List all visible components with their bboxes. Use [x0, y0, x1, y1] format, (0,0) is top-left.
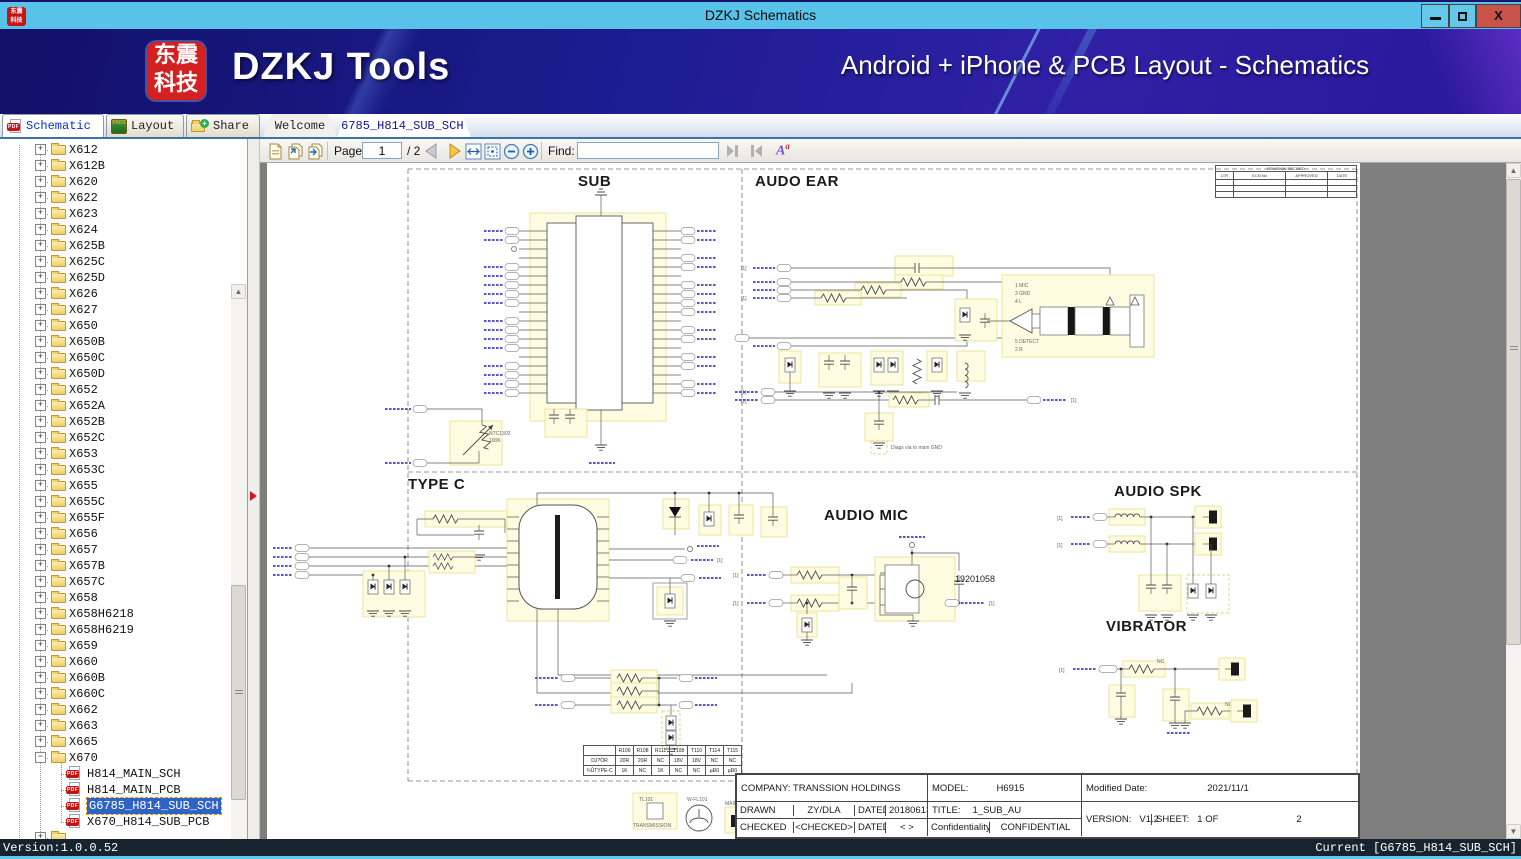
- svg-text:[1]: [1]: [1057, 543, 1063, 549]
- svg-text:[1]: [1]: [1059, 668, 1065, 674]
- folder-icon: [51, 177, 66, 187]
- expand-toggle[interactable]: +: [35, 352, 46, 363]
- close-button[interactable]: X: [1476, 4, 1521, 28]
- tree-folder-label: X658H6218: [69, 606, 134, 622]
- tab-label: Share: [213, 119, 249, 133]
- tree-folder-row[interactable]: +X650C: [0, 350, 230, 366]
- tree-folder-row[interactable]: +X653: [0, 446, 230, 462]
- expand-toggle[interactable]: +: [35, 304, 46, 315]
- tree-folder-row[interactable]: +X625D: [0, 270, 230, 286]
- expand-toggle[interactable]: +: [35, 464, 46, 475]
- expand-toggle[interactable]: +: [35, 144, 46, 155]
- tree-folder-row[interactable]: +X650: [0, 318, 230, 334]
- typec-config-table: R106R108R111T108T110T114T115DJ?ÖR20R20RN…: [583, 745, 742, 776]
- folder-icon: [51, 337, 66, 347]
- tree-folder-row[interactable]: +X662: [0, 702, 230, 718]
- expand-toggle[interactable]: +: [35, 592, 46, 603]
- drawn-row: DRAWN ZY/DLA DATED 20180613: [737, 802, 928, 819]
- typec-table-cell: 1K: [616, 766, 634, 776]
- expand-toggle[interactable]: +: [35, 736, 46, 747]
- tree-folder-label: X656: [69, 526, 98, 542]
- pdf-icon: PDF: [66, 798, 81, 813]
- status-bar: Version:1.0.0.52 Current [G6785_H814_SUB…: [0, 839, 1521, 859]
- title-bar[interactable]: 东震科技 DZKJ Schematics X: [0, 0, 1521, 29]
- prev-page-button[interactable]: [422, 142, 440, 160]
- tree-folder-label: X652B: [69, 414, 105, 430]
- scrollbar-grip: [235, 690, 243, 696]
- fit-page-button[interactable]: [483, 142, 501, 160]
- tree-folder-row[interactable]: +X656: [0, 526, 230, 542]
- expand-toggle[interactable]: +: [35, 528, 46, 539]
- tab-layout[interactable]: PADS Layout: [106, 114, 184, 137]
- tree-folder-row[interactable]: −X670: [0, 750, 230, 766]
- pdf-badge: PDF: [66, 818, 79, 826]
- folder-icon: [51, 705, 66, 715]
- pdf-icon: PDF: [66, 766, 81, 781]
- revision-table-header: ECN No: [1234, 172, 1286, 180]
- svg-text:W-FL101: W-FL101: [687, 797, 708, 803]
- tab-welcome[interactable]: Welcome: [263, 114, 337, 137]
- tree-folder-label: X627: [69, 302, 98, 318]
- folder-icon: [51, 657, 66, 667]
- svg-text:1 MIC: 1 MIC: [1015, 283, 1029, 289]
- tree-folder-row[interactable]: +X612: [0, 142, 230, 158]
- folder-icon: [51, 753, 66, 763]
- expand-toggle[interactable]: +: [35, 640, 46, 651]
- canvas-scrollbar[interactable]: ▲ ▼: [1506, 163, 1521, 839]
- folder-icon: [51, 433, 66, 443]
- scrollbar-grip: [1510, 346, 1518, 352]
- tree-folder-label: X650C: [69, 350, 105, 366]
- typec-table-cell: 20R: [616, 756, 634, 766]
- typec-table-cell: [584, 746, 616, 756]
- tree-folder-label: X655C: [69, 494, 105, 510]
- section-title-audo-ear: AUDO EAR: [755, 173, 839, 190]
- current-document-text: Current [G6785_H814_SUB_SCH]: [1315, 840, 1517, 856]
- tab-close-icon[interactable]: x: [469, 119, 475, 132]
- tree-folder-row[interactable]: +X663: [0, 718, 230, 734]
- confidentiality-row: Confidentiality CONFIDENTIAL: [928, 819, 1082, 836]
- pdf-badge: PDF: [66, 802, 79, 810]
- expand-toggle[interactable]: +: [35, 512, 46, 523]
- typec-table-cell: R111: [652, 746, 670, 756]
- tree-folder-row[interactable]: +X658: [0, 590, 230, 606]
- tree-folder-label: X620: [69, 174, 98, 190]
- typec-table-cell: DJ?ÖR: [584, 756, 616, 766]
- folder-icon: [51, 721, 66, 731]
- schematic-page: NTC1302100K [1] [1]: [267, 163, 1360, 839]
- app-name: DZKJ Tools: [232, 46, 450, 89]
- folder-icon: [51, 689, 66, 699]
- type-c-section-drawing: [1]: [273, 492, 852, 755]
- expand-toggle[interactable]: +: [35, 672, 46, 683]
- typec-table-cell: 20R: [634, 756, 652, 766]
- tree-folder-label: X652A: [69, 398, 105, 414]
- revision-table-header: LTR: [1216, 172, 1234, 180]
- typec-table-cell: 18V: [688, 756, 706, 766]
- revision-table-cell: [1216, 192, 1234, 198]
- folder-icon: [51, 449, 66, 459]
- svg-text:Diags via to main GND: Diags via to main GND: [891, 445, 942, 451]
- svg-text:[1]: [1]: [717, 558, 723, 564]
- window-title: DZKJ Schematics: [0, 2, 1521, 28]
- tab-bar: PDF Schematic PADS Layout + Share Welcom…: [0, 114, 1521, 137]
- tree-file-row[interactable]: PDFX670_H814_SUB_PCB: [0, 814, 230, 830]
- revision-table-header: DATE: [1328, 172, 1357, 180]
- typec-table-cell: NC: [688, 766, 706, 776]
- tree-file-row[interactable]: PDFH814_MAIN_PCB: [0, 782, 230, 798]
- tree-folder-row[interactable]: +X652C: [0, 430, 230, 446]
- folder-icon: [51, 609, 66, 619]
- tree-folder-label: X670: [69, 750, 98, 766]
- expand-toggle[interactable]: +: [35, 432, 46, 443]
- folder-icon: [51, 193, 66, 203]
- expand-toggle[interactable]: +: [35, 176, 46, 187]
- tree-folder-label: X653C: [69, 462, 105, 478]
- banner-tagline: Android + iPhone & PCB Layout - Schemati…: [795, 50, 1415, 81]
- tree-folder-label: X625D: [69, 270, 105, 286]
- expand-toggle[interactable]: +: [35, 416, 46, 427]
- maximize-button[interactable]: [1449, 4, 1476, 28]
- expand-toggle[interactable]: +: [35, 160, 46, 171]
- tree-folder-row[interactable]: +X612B: [0, 158, 230, 174]
- typec-table-cell: NC: [634, 766, 652, 776]
- scrollbar-thumb[interactable]: [1506, 179, 1521, 645]
- tab-document-active[interactable]: G6785_H814_SUB_SCH x: [337, 114, 471, 137]
- folder-icon: [51, 545, 66, 555]
- section-title-vibrator: VIBRATOR: [1106, 618, 1187, 635]
- audio-spk-section-drawing: [1] [1]: [1057, 506, 1229, 620]
- folder-icon: [51, 577, 66, 587]
- folder-icon: [51, 289, 66, 299]
- page-total: / 2: [407, 144, 420, 158]
- pdf-icon: PDF: [66, 814, 81, 829]
- typec-table-cell: µÐß: [706, 766, 724, 776]
- tree-folder-label: X659: [69, 638, 98, 654]
- svg-text:[1]: [1]: [1057, 516, 1063, 522]
- tree-folder-row[interactable]: +X626: [0, 286, 230, 302]
- find-label: Find:: [548, 144, 575, 158]
- expand-toggle[interactable]: +: [35, 496, 46, 507]
- folder-icon: [51, 593, 66, 603]
- model-cell: MODEL:H6915: [928, 775, 1082, 802]
- tree-folder-label: X663: [69, 718, 98, 734]
- panel-splitter[interactable]: [248, 139, 260, 839]
- tree-folder-label: X655: [69, 478, 98, 494]
- folder-icon: [51, 145, 66, 155]
- typec-table-cell: 1K: [652, 766, 670, 776]
- tree-folder-row[interactable]: +X655F: [0, 510, 230, 526]
- file-tree-panel: +X612+X612B+X620+X622+X623+X624+X625B+X6…: [0, 139, 248, 839]
- svg-text:[1]: [1]: [989, 601, 995, 607]
- svg-text:TRANSMISSION: TRANSMISSION: [633, 823, 671, 829]
- tree-folder-row[interactable]: +X627: [0, 302, 230, 318]
- scroll-up-icon[interactable]: ▲: [1506, 163, 1521, 178]
- find-next-button[interactable]: [748, 142, 766, 160]
- version-text: Version:1.0.0.52: [3, 840, 118, 856]
- pdf-canvas[interactable]: NTC1302100K [1] [1]: [260, 163, 1506, 839]
- bottom-components-drawing: TL101TRANSMISSION W-FL101 MAIN101: [633, 793, 747, 833]
- pdf-badge: PDF: [66, 786, 79, 794]
- tree-scrollbar[interactable]: ▲ ▼: [231, 284, 247, 839]
- typec-table-cell: NC: [724, 756, 742, 766]
- checked-row: CHECKED <CHECKED> DATED < >: [737, 819, 928, 836]
- tree-folder-row[interactable]: +X623: [0, 206, 230, 222]
- tree-file-label: X670_H814_SUB_PCB: [87, 814, 209, 830]
- folder-icon: [51, 529, 66, 539]
- tree-folder-row[interactable]: +X658H6219: [0, 622, 230, 638]
- expand-toggle[interactable]: +: [35, 608, 46, 619]
- audio-mic-section-drawing: [1] [1]: [733, 537, 995, 645]
- tree-folder-label: X658: [69, 590, 98, 606]
- tree-file-label: H814_MAIN_SCH: [87, 766, 181, 782]
- tab-schematic[interactable]: PDF Schematic: [2, 114, 104, 137]
- svg-text:[1]: [1]: [733, 573, 739, 579]
- revision-table-header: APPROVED: [1286, 172, 1328, 180]
- typec-table-cell: R108: [634, 746, 652, 756]
- tree-folder-row[interactable]: +X652A: [0, 398, 230, 414]
- tree-folder-row[interactable]: +X625C: [0, 254, 230, 270]
- schematic-drawing: NTC1302100K [1] [1]: [267, 163, 1360, 839]
- zoom-out-button[interactable]: [502, 142, 520, 160]
- tree-folder-row[interactable]: +X625B: [0, 238, 230, 254]
- tree-folder-label: X657C: [69, 574, 105, 590]
- next-page-button[interactable]: [446, 142, 464, 160]
- section-title-audio-spk: AUDIO SPK: [1114, 483, 1202, 500]
- app-window: 东震科技 DZKJ Schematics X 东震科技 DZKJ Tools A…: [0, 0, 1521, 859]
- expand-toggle[interactable]: +: [35, 688, 46, 699]
- folder-icon: [51, 257, 66, 267]
- expand-toggle[interactable]: +: [35, 560, 46, 571]
- folder-icon: [51, 737, 66, 747]
- tree-folder-row[interactable]: +X655C: [0, 494, 230, 510]
- tree-folder-label: X658H6219: [69, 622, 134, 638]
- typec-table-cell: R106: [616, 746, 634, 756]
- pdf-icon: PDF: [7, 119, 22, 134]
- tree-folder-label: X612B: [69, 158, 105, 174]
- tree-folder-row[interactable]: +X665: [0, 734, 230, 750]
- expand-toggle[interactable]: +: [35, 224, 46, 235]
- tree-folder-row[interactable]: +X620: [0, 174, 230, 190]
- expand-toggle[interactable]: +: [35, 320, 46, 331]
- folder-icon: [51, 225, 66, 235]
- find-input[interactable]: [577, 142, 719, 159]
- svg-text:NTC1302: NTC1302: [489, 431, 511, 437]
- tree-folder-label: X652C: [69, 430, 105, 446]
- tree-folder-label: X653: [69, 446, 98, 462]
- export-page-button[interactable]: [266, 142, 284, 160]
- tab-label: G6785_H814_SUB_SCH: [334, 119, 464, 133]
- folder-icon: [51, 641, 66, 651]
- match-case-icon[interactable]: Aa: [776, 141, 790, 160]
- tree-folder-row[interactable]: +X650D: [0, 366, 230, 382]
- tree-folder-label: X625C: [69, 254, 105, 270]
- expand-toggle[interactable]: +: [35, 544, 46, 555]
- tab-label: Welcome: [275, 119, 325, 133]
- typec-table-cell: ¾ÛTYPE-C: [584, 766, 616, 776]
- typec-table-cell: NC: [670, 766, 688, 776]
- pdf-toolbar: Page: / 2 Find: Aa: [260, 139, 1521, 163]
- folder-icon: [51, 305, 66, 315]
- audo-ear-section-drawing: [1] [1]: [735, 256, 1154, 454]
- expand-toggle[interactable]: +: [35, 272, 46, 283]
- section-title-sub: SUB: [578, 173, 611, 190]
- svg-text:100K: 100K: [489, 438, 501, 444]
- tree-folder-row[interactable]: +: [0, 830, 230, 839]
- title-cell: TITLE:1_SUB_AU: [928, 802, 1082, 819]
- tree-folder-label: X662: [69, 702, 98, 718]
- svg-text:[1]: [1]: [741, 296, 747, 302]
- expand-toggle[interactable]: +: [35, 256, 46, 267]
- folder-icon: [51, 497, 66, 507]
- svg-text:[1]: [1]: [733, 601, 739, 607]
- tree-folder-label: X650: [69, 318, 98, 334]
- expand-toggle[interactable]: +: [35, 240, 46, 251]
- svg-text:TL101: TL101: [639, 797, 653, 803]
- tree-folder-row[interactable]: +X624: [0, 222, 230, 238]
- expand-toggle[interactable]: +: [35, 576, 46, 587]
- tree-folder-label: X624: [69, 222, 98, 238]
- tab-label: Schematic: [26, 119, 91, 133]
- minimize-button[interactable]: [1421, 4, 1449, 28]
- svg-text:2 R: 2 R: [1015, 347, 1023, 353]
- tree-folder-label: X625B: [69, 238, 105, 254]
- revision-table-cell: [1234, 192, 1286, 198]
- tree-folder-label: X655F: [69, 510, 105, 526]
- section-title-type-c: TYPE C: [408, 476, 465, 493]
- folder-icon: [51, 241, 66, 251]
- svg-text:3 GND: 3 GND: [1015, 291, 1031, 297]
- expand-toggle[interactable]: +: [35, 624, 46, 635]
- expand-toggle[interactable]: +: [35, 704, 46, 715]
- folder-icon: [51, 417, 66, 427]
- folder-icon: [51, 273, 66, 283]
- tree-folder-row[interactable]: +X660C: [0, 686, 230, 702]
- tree-folder-label: X657B: [69, 558, 105, 574]
- typec-table-cell: 18V: [670, 756, 688, 766]
- revision-table-cell: [1286, 192, 1328, 198]
- fit-width-button[interactable]: [464, 142, 482, 160]
- zoom-in-button[interactable]: [521, 142, 539, 160]
- tree-folder-row[interactable]: +X652B: [0, 414, 230, 430]
- folder-icon: [51, 625, 66, 635]
- version-sheet-cell: VERSION:V1.2 SHEET:1 OF2: [1082, 802, 1358, 836]
- typec-table-cell: T110: [688, 746, 706, 756]
- tree-folder-row[interactable]: +X660: [0, 654, 230, 670]
- tree-folder-label: X612: [69, 142, 98, 158]
- collapse-arrow-icon[interactable]: [250, 491, 257, 501]
- tree-folder-label: X652: [69, 382, 98, 398]
- svg-text:5 DETECT: 5 DETECT: [1015, 339, 1039, 345]
- pads-icon: PADS: [111, 119, 127, 134]
- tree-file-row[interactable]: PDFG6785_H814_SUB_SCH: [0, 798, 230, 814]
- page-number-input[interactable]: [362, 142, 402, 159]
- expand-toggle[interactable]: +: [35, 192, 46, 203]
- folder-icon: [51, 161, 66, 171]
- typec-table-cell: T108: [670, 746, 688, 756]
- folder-icon: [51, 481, 66, 491]
- svg-text:4 L: 4 L: [1015, 299, 1022, 305]
- tree-folder-row[interactable]: +X657C: [0, 574, 230, 590]
- expand-toggle[interactable]: +: [35, 368, 46, 379]
- expand-toggle[interactable]: +: [35, 336, 46, 347]
- tree-file-row[interactable]: PDFH814_MAIN_SCH: [0, 766, 230, 782]
- mic-part-number: 19201058: [955, 574, 995, 584]
- tree-folder-row[interactable]: +X653C: [0, 462, 230, 478]
- folder-icon: [51, 353, 66, 363]
- tree-folder-row[interactable]: +X659: [0, 638, 230, 654]
- pdf-badge: PDF: [66, 770, 79, 778]
- tree-folder-label: X623: [69, 206, 98, 222]
- tree-folder-label: X660: [69, 654, 98, 670]
- tree-folder-row[interactable]: +X657B: [0, 558, 230, 574]
- title-block: COMPANY: TRANSSION HOLDINGS MODEL:H6915 …: [735, 773, 1360, 839]
- folder-icon: [51, 465, 66, 475]
- tree-folder-row[interactable]: +X622: [0, 190, 230, 206]
- folder-icon: [51, 385, 66, 395]
- expand-toggle[interactable]: +: [35, 656, 46, 667]
- expand-toggle[interactable]: −: [35, 752, 46, 763]
- section-title-audio-mic: AUDIO MIC: [824, 507, 909, 524]
- find-previous-button[interactable]: [723, 142, 741, 160]
- expand-toggle[interactable]: +: [35, 832, 46, 839]
- tree-folder-row[interactable]: +X650B: [0, 334, 230, 350]
- scroll-up-icon[interactable]: ▲: [231, 284, 246, 299]
- tab-share[interactable]: + Share: [186, 114, 260, 137]
- expand-toggle[interactable]: +: [35, 384, 46, 395]
- expand-toggle[interactable]: +: [35, 288, 46, 299]
- brand-logo: 东震科技: [147, 42, 205, 100]
- tree-file-label: H814_MAIN_PCB: [87, 782, 181, 798]
- typec-table-cell: NC: [652, 756, 670, 766]
- expand-toggle[interactable]: +: [35, 400, 46, 411]
- expand-toggle[interactable]: +: [35, 720, 46, 731]
- scrollbar-thumb[interactable]: [231, 585, 246, 800]
- banner: 东震科技 DZKJ Tools Android + iPhone & PCB L…: [0, 29, 1521, 114]
- tree-folder-label: X622: [69, 190, 98, 206]
- revision-record-table: REVISION RECORDLTRECN NoAPPROVEDDATE: [1215, 165, 1357, 198]
- tree-folder-row[interactable]: +X657: [0, 542, 230, 558]
- revision-table-cell: [1328, 192, 1357, 198]
- typec-table-cell: T115: [724, 746, 742, 756]
- folder-icon: [51, 209, 66, 219]
- tree-folder-row[interactable]: +X652: [0, 382, 230, 398]
- tree-file-label: G6785_H814_SUB_SCH: [87, 798, 221, 814]
- folder-icon: [51, 561, 66, 571]
- app-logo-icon: 东震科技: [7, 7, 26, 26]
- tree-folder-label: X660B: [69, 670, 105, 686]
- tree-folder-label: X650D: [69, 366, 105, 382]
- tree-folder-row[interactable]: +X655: [0, 478, 230, 494]
- expand-toggle[interactable]: +: [35, 448, 46, 459]
- folder-icon: [51, 321, 66, 331]
- expand-toggle[interactable]: +: [35, 208, 46, 219]
- svg-text:[1]: [1]: [1071, 398, 1077, 404]
- tree-folder-row[interactable]: +X660B: [0, 670, 230, 686]
- copy-page-button[interactable]: [286, 142, 304, 160]
- folder-icon: [51, 401, 66, 411]
- tree-folder-row[interactable]: +X658H6218: [0, 606, 230, 622]
- scroll-down-icon[interactable]: ▼: [1506, 824, 1521, 839]
- expand-toggle[interactable]: +: [35, 480, 46, 491]
- folder-icon: [51, 513, 66, 523]
- insert-page-button[interactable]: [306, 142, 324, 160]
- tab-label: Layout: [131, 119, 174, 133]
- share-folder-icon: +: [191, 119, 209, 134]
- page-label: Page:: [334, 144, 365, 158]
- folder-icon: [51, 369, 66, 379]
- svg-text:[1]: [1]: [741, 390, 747, 396]
